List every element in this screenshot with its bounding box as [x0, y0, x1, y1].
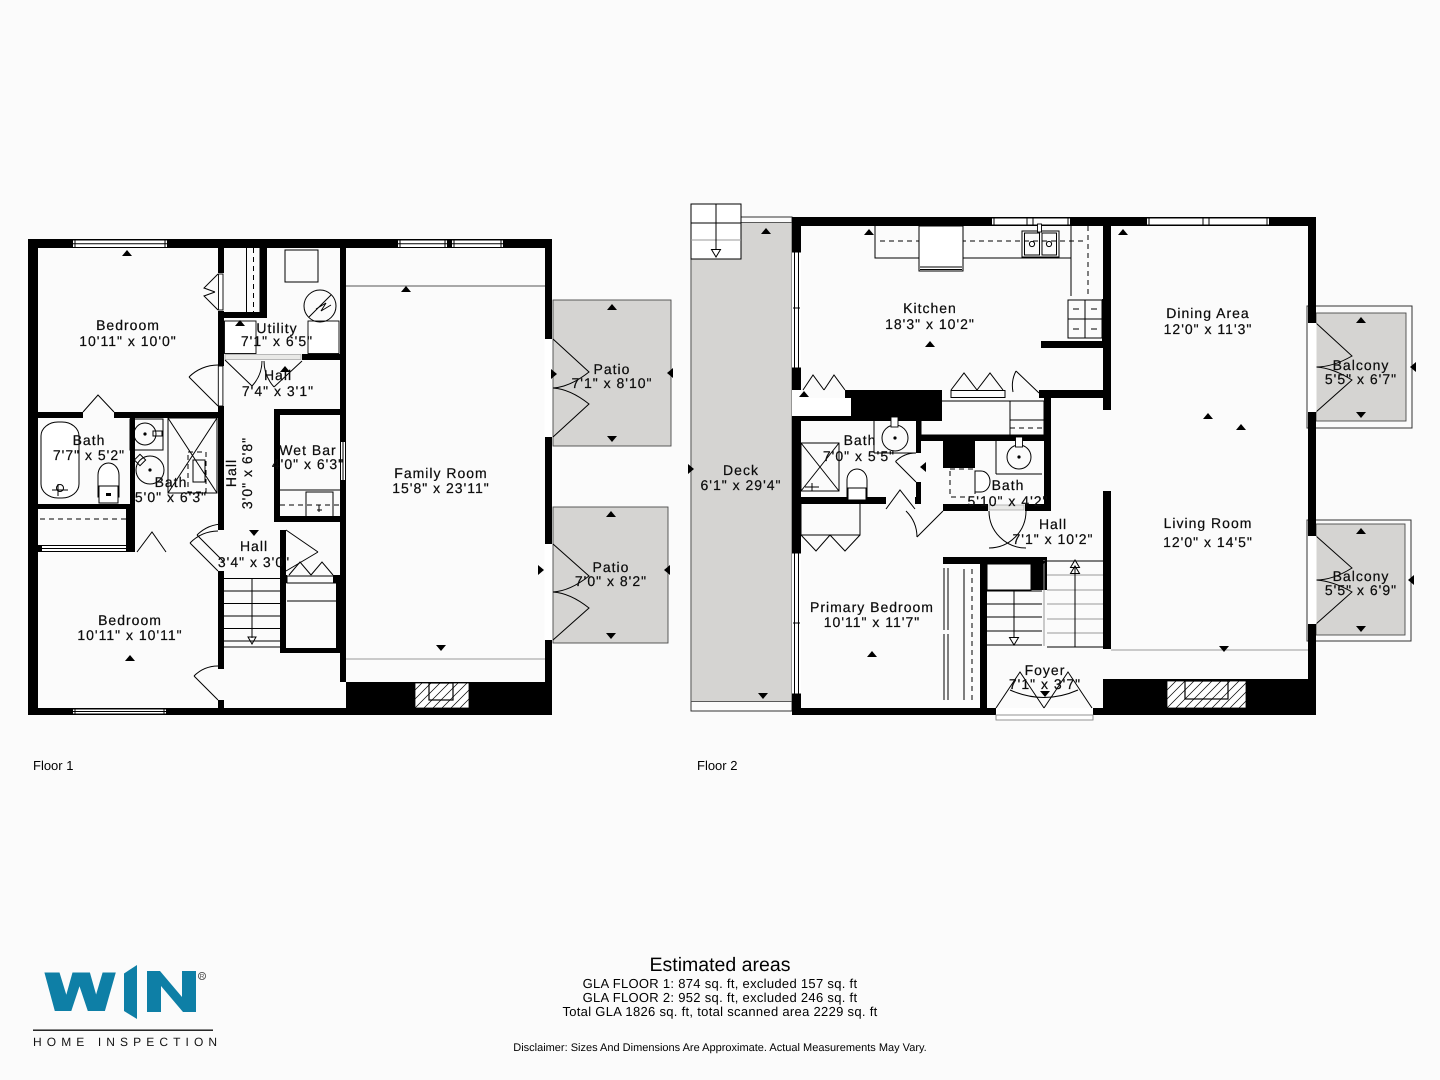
- svg-text:4'0" x 6'3": 4'0" x 6'3": [272, 456, 344, 472]
- svg-text:15'8" x 23'11": 15'8" x 23'11": [392, 480, 490, 496]
- svg-text:GLA FLOOR 1: 874 sq. ft, exclu: GLA FLOOR 1: 874 sq. ft, excluded 157 sq…: [583, 976, 858, 991]
- svg-text:Bath: Bath: [73, 432, 106, 448]
- svg-text:Estimated areas: Estimated areas: [650, 954, 791, 976]
- svg-text:5'5" x 6'7": 5'5" x 6'7": [1325, 371, 1397, 387]
- svg-text:Disclaimer: Sizes And Dimensio: Disclaimer: Sizes And Dimensions Are App…: [513, 1042, 926, 1054]
- svg-text:7'1" x 8'10": 7'1" x 8'10": [572, 375, 653, 391]
- svg-text:HOME INSPECTION: HOME INSPECTION: [33, 1035, 222, 1049]
- svg-text:Bath: Bath: [155, 474, 188, 490]
- svg-text:Dining Area: Dining Area: [1166, 305, 1249, 321]
- svg-text:Primary Bedroom: Primary Bedroom: [810, 599, 934, 615]
- svg-text:7'0" x 8'2": 7'0" x 8'2": [575, 573, 647, 589]
- svg-text:Hall: Hall: [223, 459, 239, 487]
- svg-text:7'0" x 5'5": 7'0" x 5'5": [823, 448, 895, 464]
- svg-text:7'7" x 5'2": 7'7" x 5'2": [53, 447, 125, 463]
- svg-text:Floor 2: Floor 2: [697, 758, 737, 773]
- svg-text:7'4" x 3'1": 7'4" x 3'1": [242, 383, 314, 399]
- svg-text:Family Room: Family Room: [394, 465, 487, 481]
- svg-text:R: R: [200, 974, 205, 981]
- svg-text:10'11" x 10'11": 10'11" x 10'11": [77, 627, 182, 643]
- svg-text:Total GLA 1826 sq. ft, total s: Total GLA 1826 sq. ft, total scanned are…: [562, 1004, 877, 1019]
- svg-text:6'1" x 29'4": 6'1" x 29'4": [701, 477, 782, 493]
- svg-text:12'0" x 11'3": 12'0" x 11'3": [1164, 321, 1253, 337]
- svg-text:3'0" x 6'8": 3'0" x 6'8": [239, 437, 255, 509]
- svg-text:Bath: Bath: [992, 477, 1025, 493]
- svg-text:Kitchen: Kitchen: [903, 300, 957, 316]
- svg-text:Hall: Hall: [264, 367, 292, 383]
- svg-text:3'4" x 3'0": 3'4" x 3'0": [218, 554, 290, 570]
- svg-text:7'1" x 10'2": 7'1" x 10'2": [1013, 531, 1094, 547]
- svg-text:GLA FLOOR 2: 952 sq. ft, exclu: GLA FLOOR 2: 952 sq. ft, excluded 246 sq…: [583, 990, 858, 1005]
- svg-text:18'3" x 10'2": 18'3" x 10'2": [885, 316, 975, 332]
- svg-text:Deck: Deck: [723, 462, 759, 478]
- svg-text:7'1" x 3'7": 7'1" x 3'7": [1009, 676, 1081, 692]
- svg-text:Hall: Hall: [240, 538, 268, 554]
- svg-text:Hall: Hall: [1039, 516, 1067, 532]
- svg-text:12'0" x 14'5": 12'0" x 14'5": [1163, 534, 1253, 550]
- svg-text:7'1" x 6'5": 7'1" x 6'5": [241, 333, 313, 349]
- svg-text:Floor 1: Floor 1: [33, 758, 73, 773]
- svg-text:5'10" x 4'2": 5'10" x 4'2": [968, 493, 1049, 509]
- svg-text:5'5" x 6'9": 5'5" x 6'9": [1325, 582, 1397, 598]
- svg-text:5'0" x 6'3": 5'0" x 6'3": [135, 489, 207, 505]
- svg-text:Bedroom: Bedroom: [96, 317, 160, 333]
- svg-text:Living Room: Living Room: [1164, 515, 1253, 531]
- svg-text:Bath: Bath: [844, 432, 877, 448]
- svg-text:10'11" x 11'7": 10'11" x 11'7": [824, 614, 921, 630]
- svg-text:10'11" x 10'0": 10'11" x 10'0": [79, 333, 177, 349]
- svg-text:Bedroom: Bedroom: [98, 612, 162, 628]
